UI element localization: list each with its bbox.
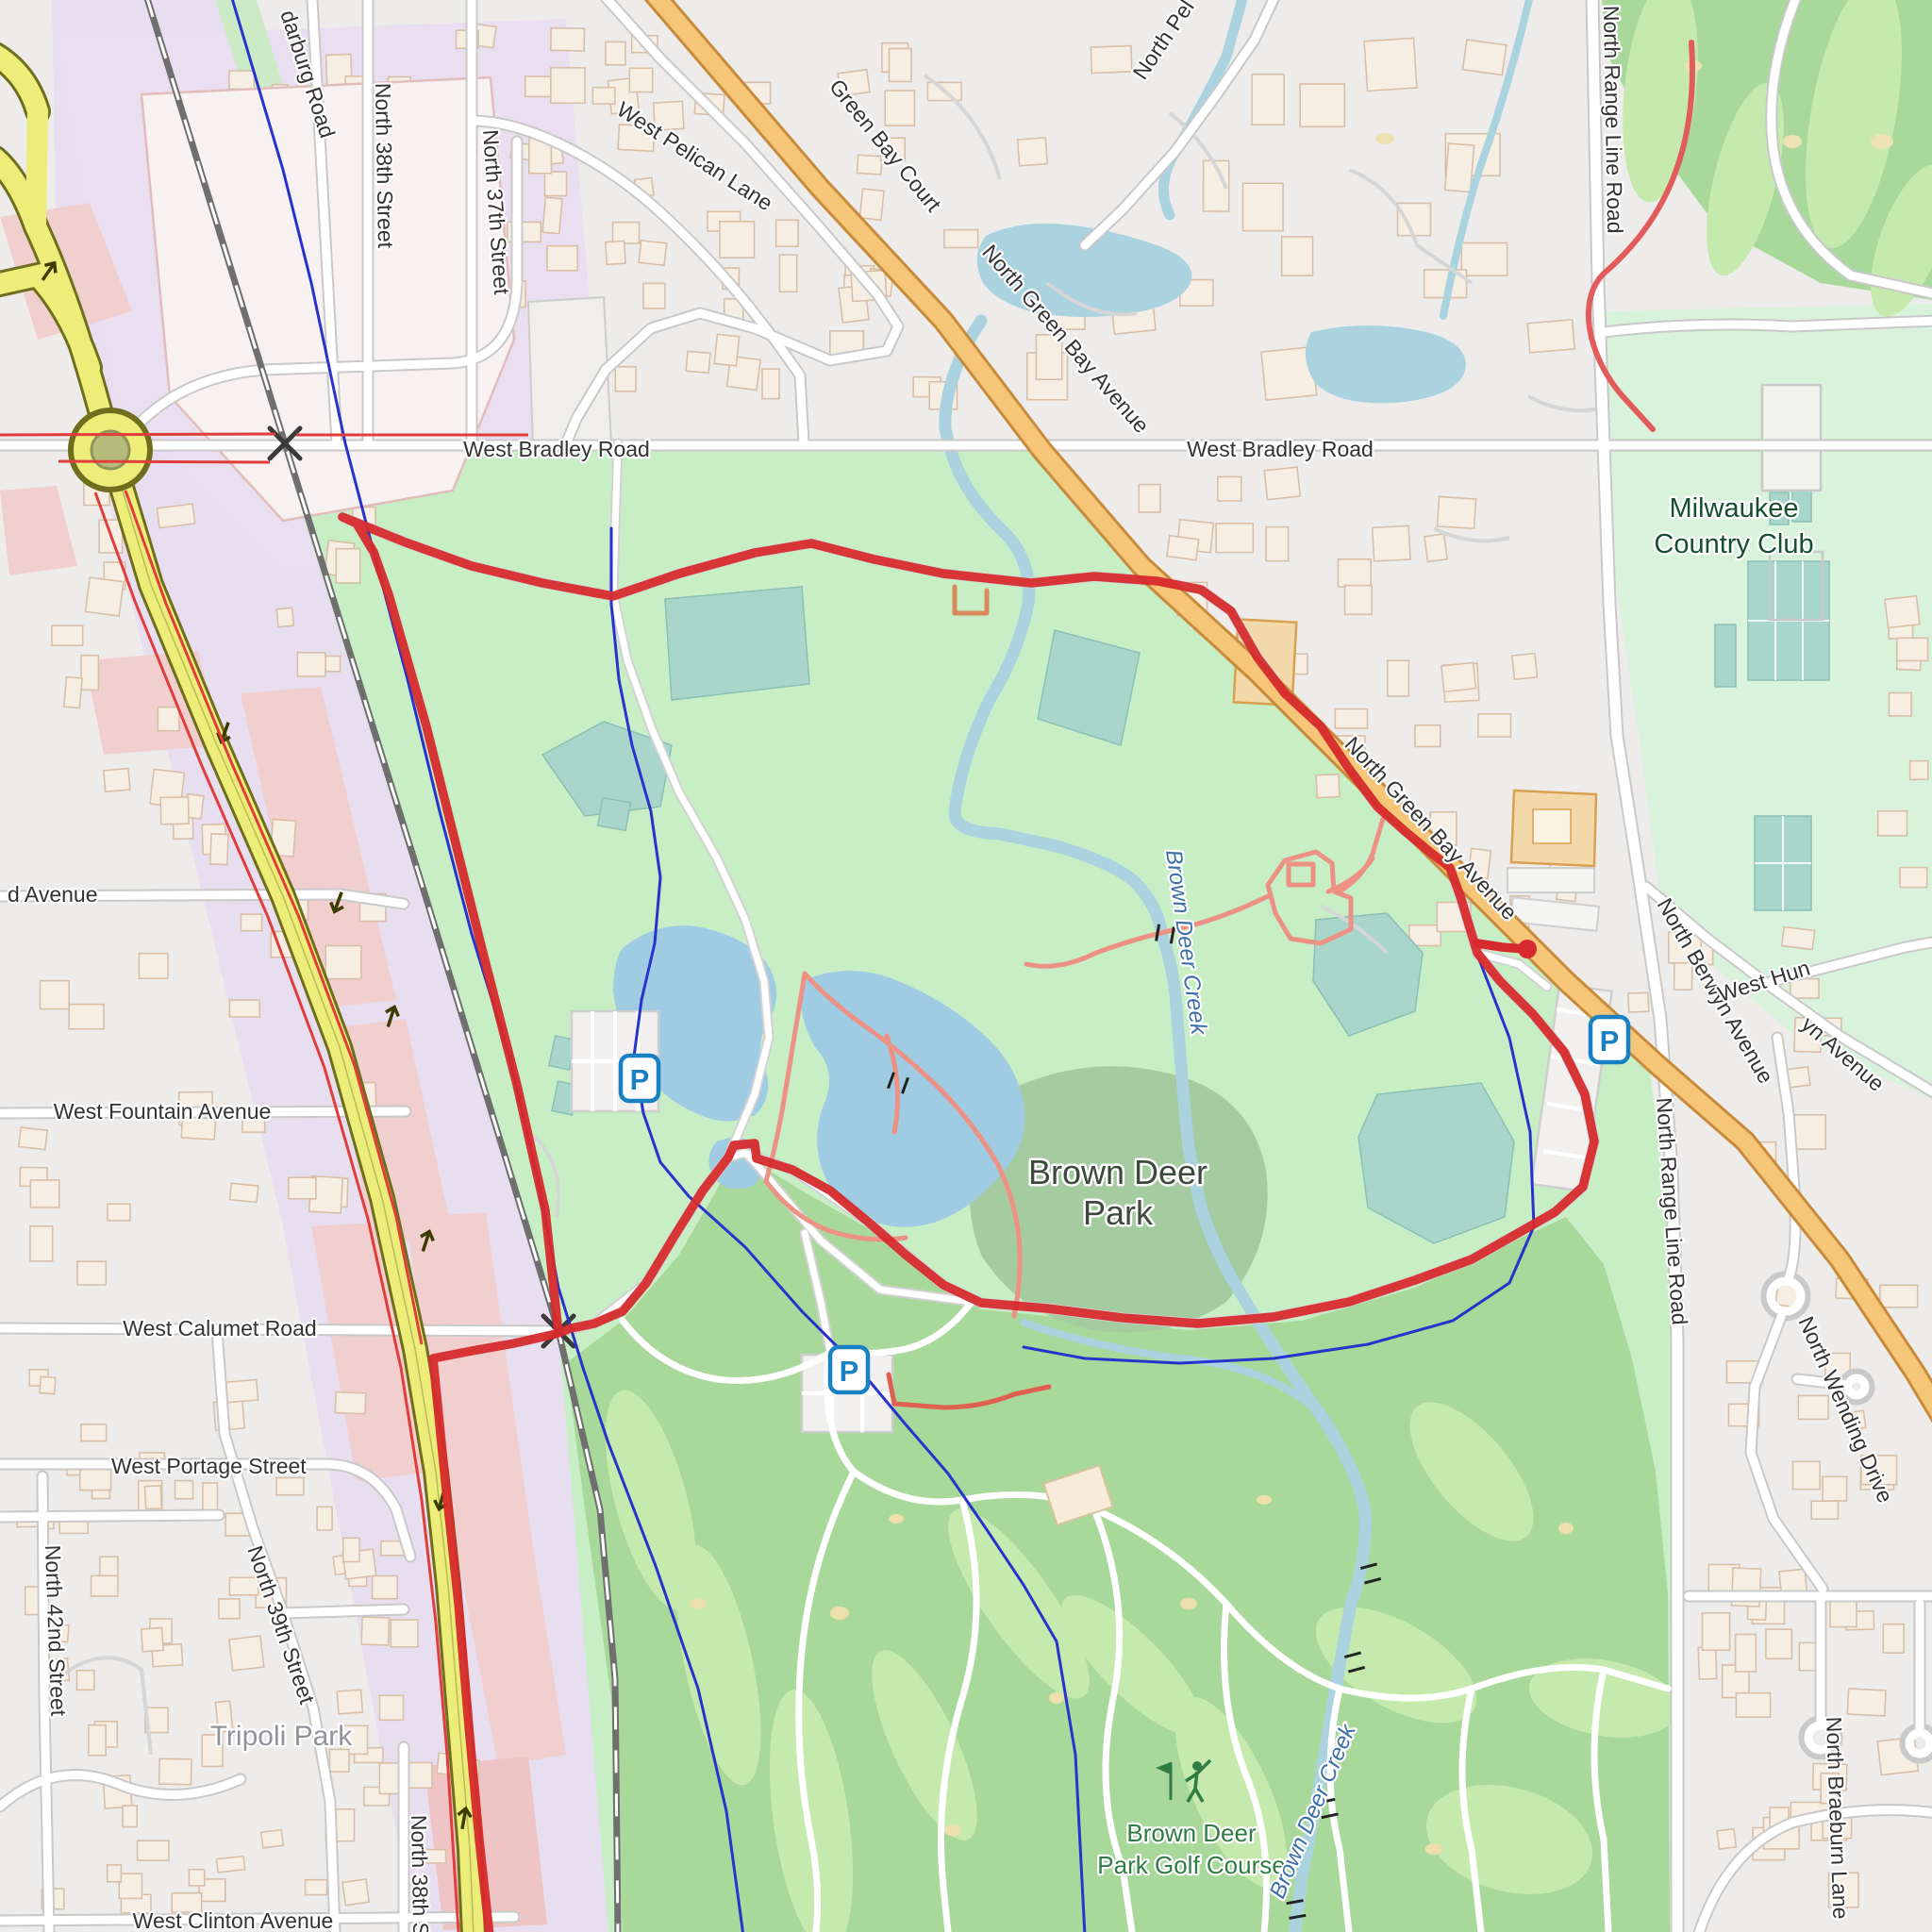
label-bradley-west: West Bradley Road (463, 437, 650, 461)
label-portage: West Portage Street (111, 1454, 307, 1478)
label-golf-2: Park Golf Course (1097, 1851, 1285, 1879)
label-bdp-1: Brown Deer (1028, 1153, 1207, 1191)
route-parking-spur (1477, 943, 1524, 949)
cc-structure (1762, 385, 1821, 491)
route-endpoint-marker (1518, 940, 1537, 958)
label-mcc-2: Country Club (1654, 529, 1813, 559)
label-n38-bottom: North 38th Street (407, 1815, 434, 1932)
parking-icon-south: P (830, 1347, 868, 1392)
label-bradley-east: West Bradley Road (1187, 437, 1374, 461)
label-clinton: West Clinton Avenue (133, 1908, 334, 1932)
parking-icon-east: P (1591, 1017, 1628, 1062)
label-fountain: West Fountain Avenue (54, 1099, 272, 1124)
svg-text:P: P (630, 1063, 650, 1096)
svg-text:P: P (840, 1355, 859, 1388)
label-d-avenue: d Avenue (8, 882, 98, 907)
label-mcc-1: Milwaukee (1670, 493, 1799, 524)
map-canvas[interactable]: P P P West Bradley Road West Bradley Roa… (0, 0, 1932, 1932)
label-calumet: West Calumet Road (123, 1316, 316, 1341)
label-tripoli-park: Tripoli Park (210, 1721, 354, 1752)
label-n38-top: North 38th Street (371, 83, 398, 249)
map-svg: P P P West Bradley Road West Bradley Roa… (0, 0, 1932, 1932)
parking-icon-west: P (621, 1056, 658, 1101)
svg-text:P: P (1600, 1024, 1620, 1058)
label-bdp-2: Park (1083, 1193, 1154, 1232)
label-golf-1: Brown Deer (1126, 1819, 1257, 1847)
label-range-line-top: North Range Line Road (1599, 6, 1627, 234)
roundabout (92, 431, 129, 469)
